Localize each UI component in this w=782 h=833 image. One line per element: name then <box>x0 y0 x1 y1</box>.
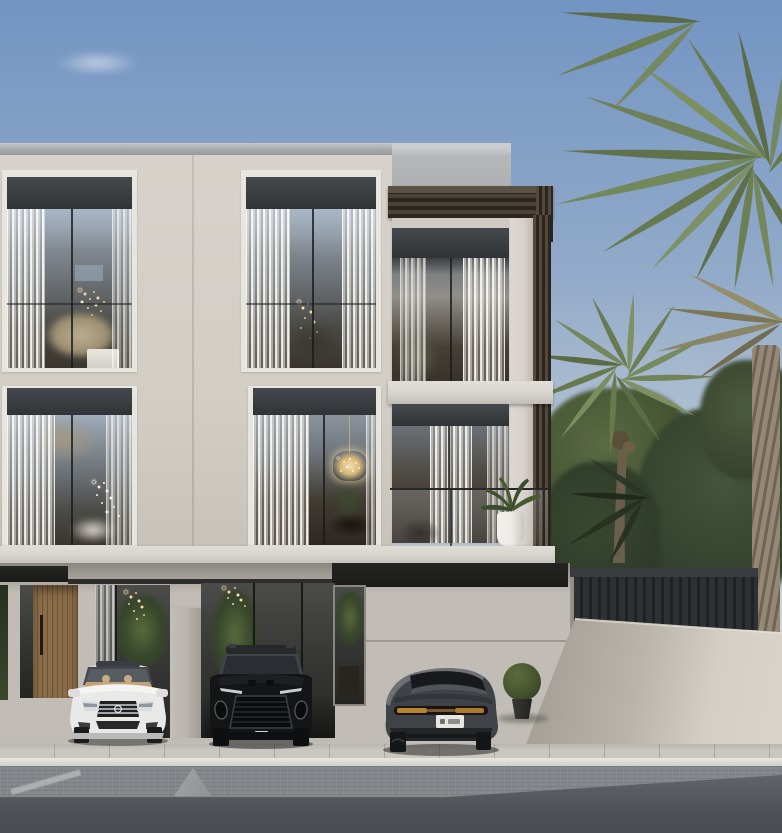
curtain-left <box>400 258 426 386</box>
white-luxury-sedan <box>66 655 170 747</box>
window-glass <box>7 415 132 545</box>
fence-top-rail <box>556 568 758 577</box>
window-header <box>7 388 132 415</box>
interior-shadow <box>286 319 342 368</box>
door-handle[interactable] <box>40 615 43 655</box>
curtain-left <box>246 209 290 368</box>
window-transom <box>7 303 132 305</box>
window-mullion <box>71 415 73 545</box>
graphite-fastback-sedan <box>380 664 502 756</box>
balcony-pot <box>497 512 524 546</box>
window-header <box>7 177 132 209</box>
crystal-chandelier <box>333 451 367 481</box>
curtain-left <box>7 209 45 368</box>
black-luxury-suv <box>208 644 314 750</box>
window-mullion <box>450 258 452 386</box>
palm-crown-large <box>554 29 782 291</box>
side-window-narrow <box>20 585 33 698</box>
curtain-right <box>366 415 376 545</box>
hedge-left <box>0 585 8 700</box>
pergola-fascia <box>388 186 553 193</box>
sparkle-branch-light <box>93 481 95 483</box>
window-2f-left <box>2 386 137 548</box>
window-3f-terrace <box>392 218 509 386</box>
pendant-lights <box>125 591 127 593</box>
canopy-left <box>0 566 68 582</box>
window-mullion <box>312 209 314 368</box>
architectural-render <box>0 0 782 833</box>
curtain-right <box>342 209 376 368</box>
window-transom <box>246 303 376 305</box>
curtain-right <box>112 209 132 368</box>
curtain-left <box>7 415 55 545</box>
string-lights <box>79 289 81 291</box>
window-3f-left <box>2 170 137 372</box>
window-2f-right <box>248 386 381 548</box>
window-glass <box>7 209 132 368</box>
window-mullion <box>71 209 73 368</box>
chandelier-sparkle <box>337 457 339 459</box>
parapet <box>0 143 392 155</box>
setback-wall <box>392 143 511 188</box>
window-header <box>392 404 509 426</box>
floor-slab-band <box>0 546 555 564</box>
palm-fronds-silhouette <box>565 455 653 565</box>
canopy-right <box>332 563 568 587</box>
curtain-left <box>253 415 309 545</box>
window-glass <box>392 258 509 386</box>
window-glass <box>253 415 376 545</box>
glass-slot-window <box>333 585 366 706</box>
window-mullion <box>323 415 325 545</box>
chandelier-stem <box>349 415 350 453</box>
railing-post <box>450 490 452 551</box>
balcony-slab <box>388 381 553 404</box>
concrete-pillar <box>170 608 201 753</box>
window-header <box>246 177 376 209</box>
interior-furniture <box>339 666 359 696</box>
topiary-shrub <box>503 663 541 701</box>
curtain-right <box>463 258 505 386</box>
window-glass <box>246 209 376 368</box>
curtain-right <box>106 415 132 545</box>
window-header <box>392 228 509 258</box>
window-3f-right <box>241 170 381 372</box>
window-header <box>253 388 376 415</box>
wall-reflection <box>75 265 103 281</box>
date-palm <box>530 293 717 563</box>
garden-view <box>337 591 363 643</box>
wall-joint-line <box>366 640 566 642</box>
pendant-lights <box>223 587 225 589</box>
curb <box>0 758 782 766</box>
facade-joint <box>192 155 194 555</box>
